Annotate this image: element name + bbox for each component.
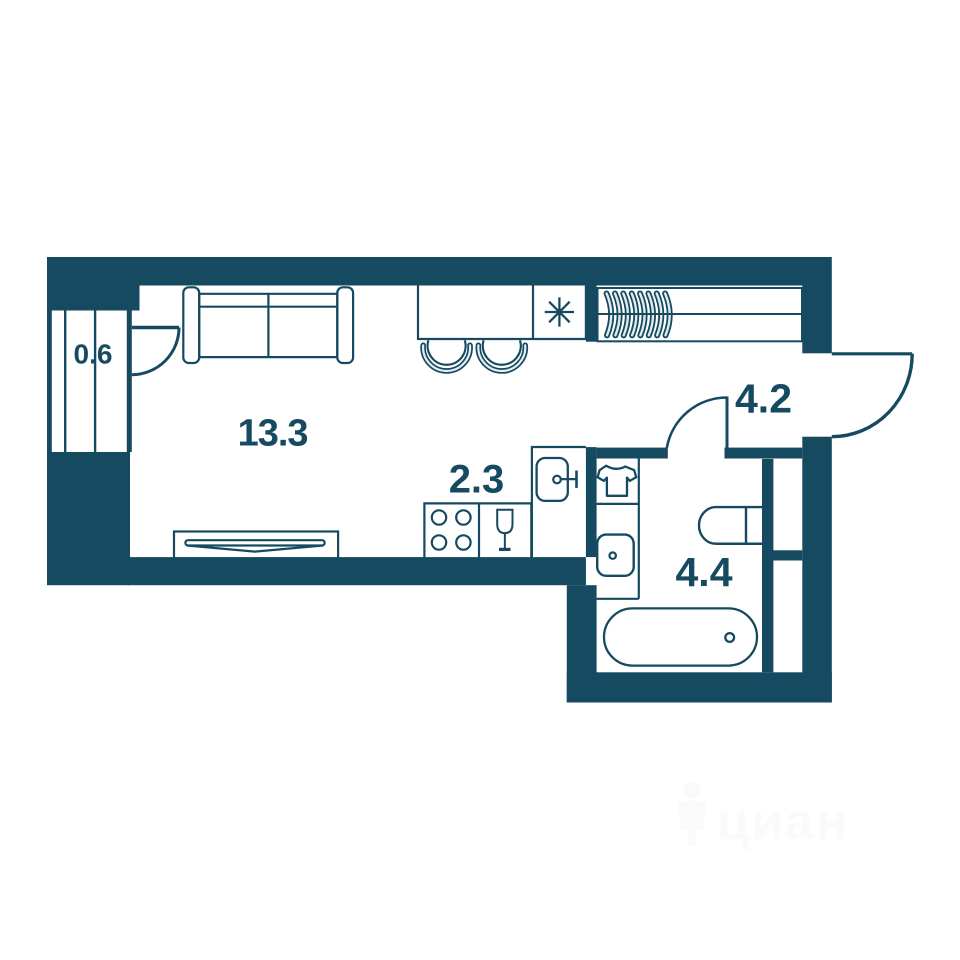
svg-text:4.2: 4.2 — [735, 375, 792, 421]
svg-text:циан: циан — [717, 793, 849, 851]
svg-text:2.3: 2.3 — [449, 458, 505, 502]
svg-text:4.4: 4.4 — [676, 549, 733, 595]
svg-text:0.6: 0.6 — [74, 339, 113, 370]
svg-text:13.3: 13.3 — [238, 412, 308, 454]
